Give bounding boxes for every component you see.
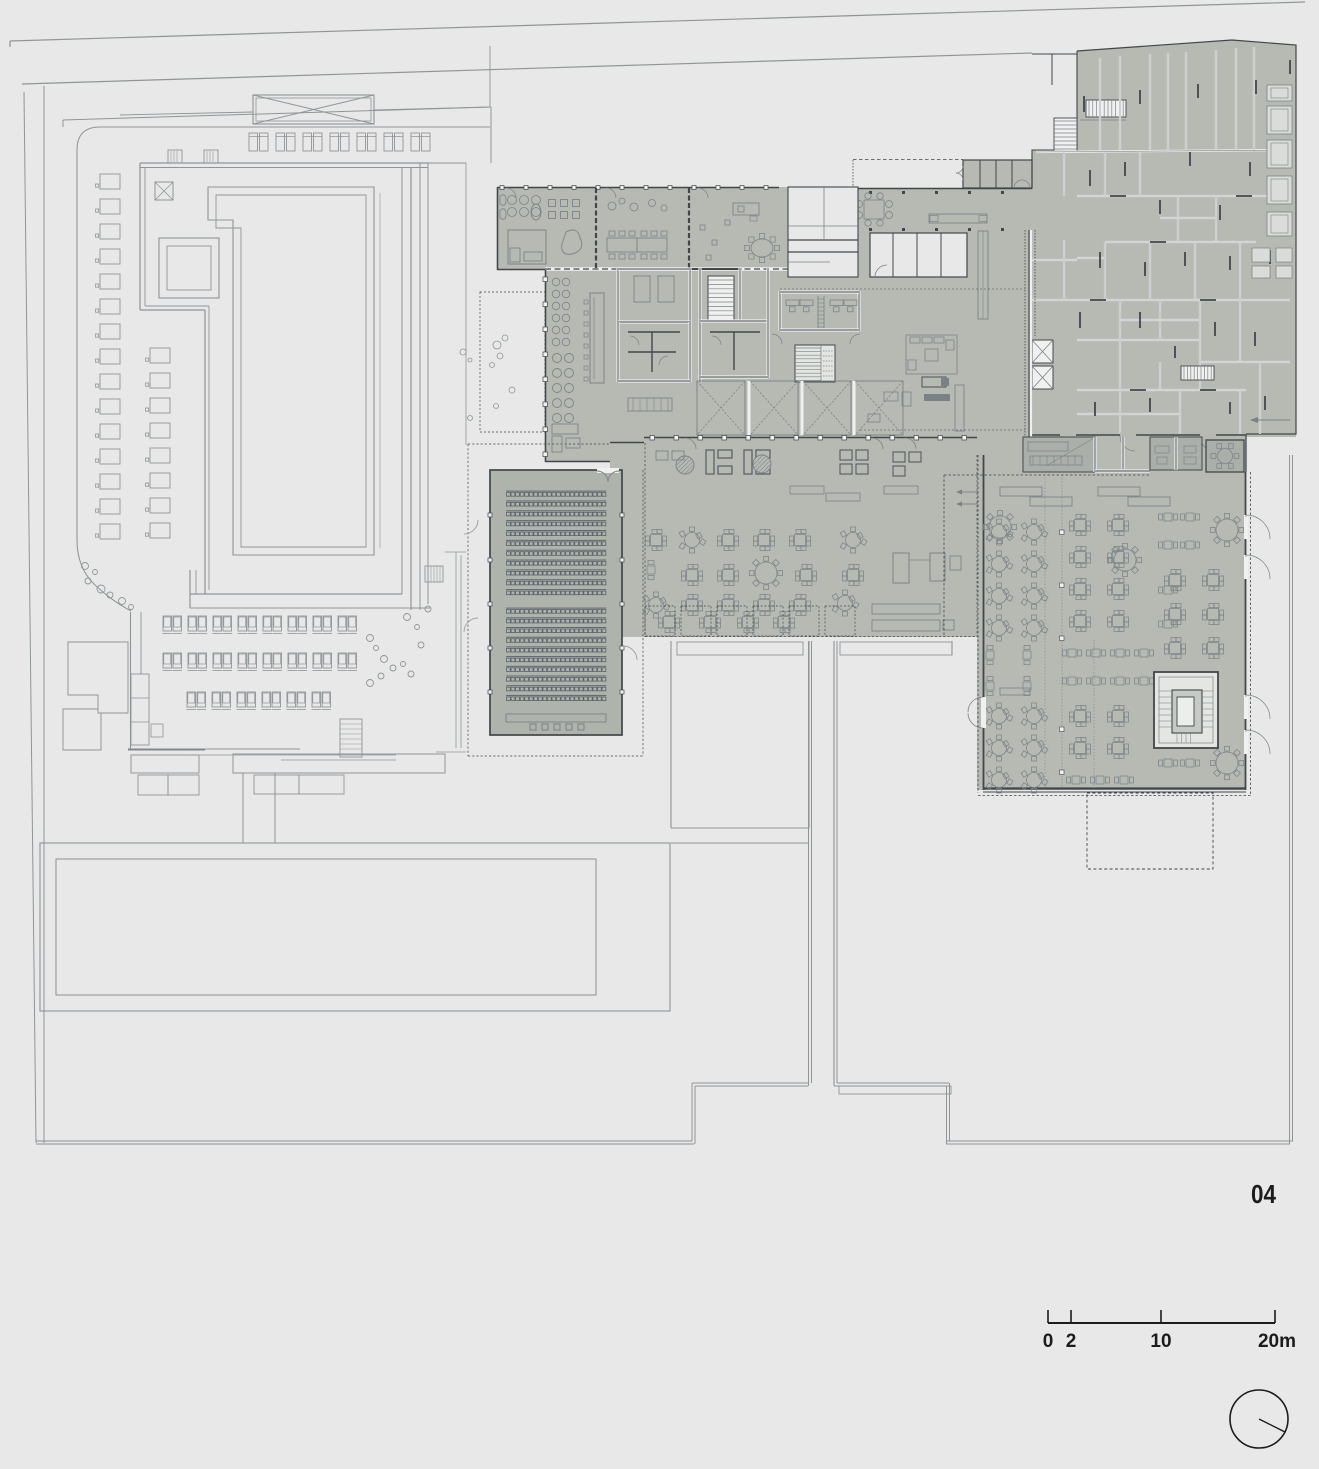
svg-text:04: 04 xyxy=(1251,1179,1276,1209)
svg-text:2: 2 xyxy=(1066,1331,1077,1352)
svg-text:20m: 20m xyxy=(1258,1331,1296,1352)
svg-text:10: 10 xyxy=(1150,1331,1171,1352)
svg-text:0: 0 xyxy=(1043,1331,1054,1352)
